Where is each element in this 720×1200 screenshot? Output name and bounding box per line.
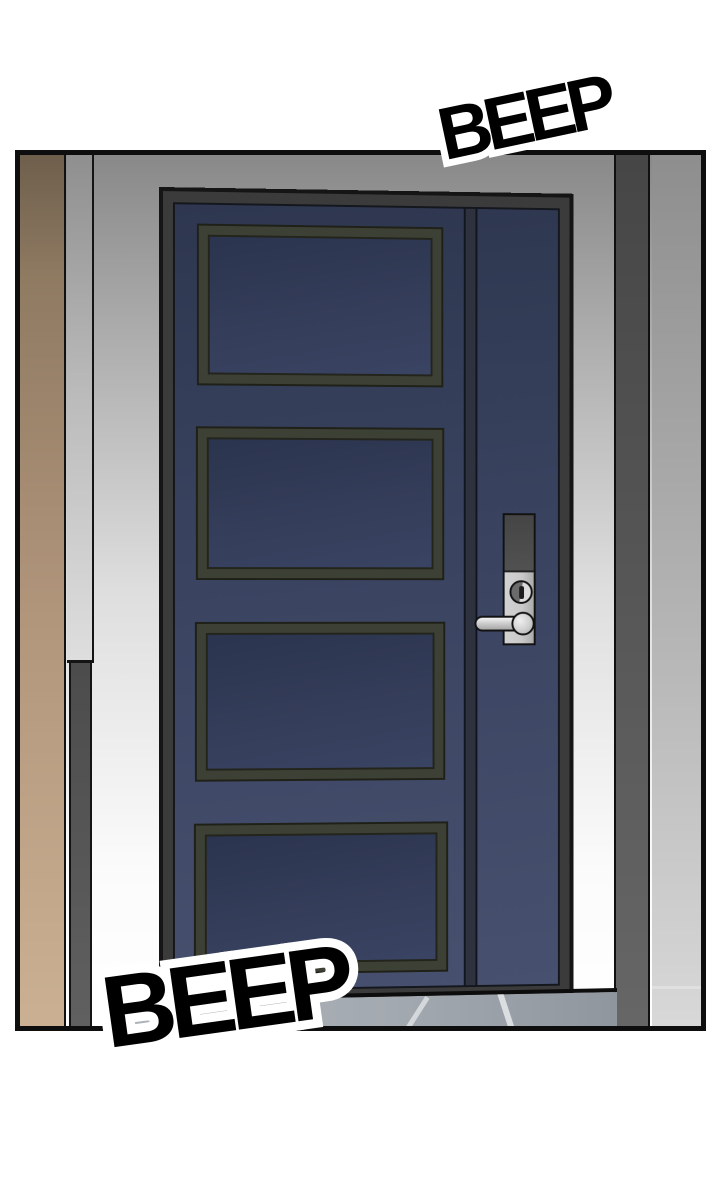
door-handle-hub (511, 612, 534, 636)
right-wall-floor-seam (652, 986, 701, 989)
comic-page: BEEP BEEP BEEP BEEP (0, 0, 720, 1200)
door-panel-2 (198, 428, 442, 578)
left-wall-strip-lower (69, 663, 92, 1026)
left-wall-strip-upper (67, 155, 94, 663)
door-panel-1 (199, 226, 441, 386)
floor-highlight-streak (401, 996, 429, 1031)
keyhole-slot (519, 586, 524, 599)
right-dark-pillar (614, 155, 650, 1026)
keyhole (509, 580, 532, 604)
floor-highlight-streak (497, 992, 516, 1031)
left-tan-wall-edge (20, 155, 66, 1026)
door-frame (159, 187, 573, 1006)
door (173, 202, 560, 992)
lock-keypad-cover (505, 515, 534, 572)
door-stile-groove (464, 209, 478, 985)
door-panel-3 (197, 624, 443, 780)
right-wall (652, 155, 701, 1026)
comic-panel (15, 150, 706, 1031)
